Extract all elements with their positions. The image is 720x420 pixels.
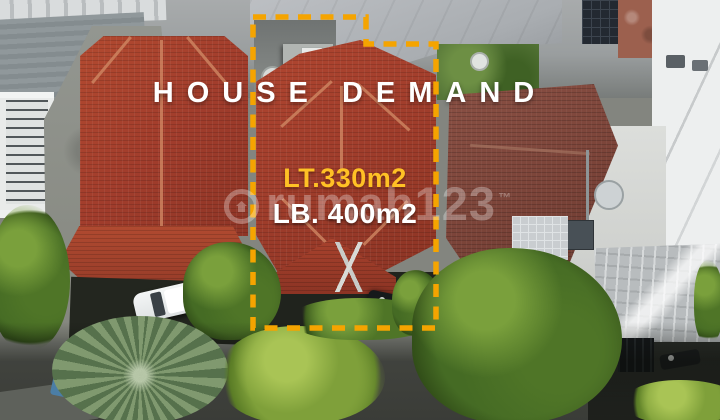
trademark-symbol: ™ [498,190,511,205]
land-area-label: LT.330m2 [253,163,437,194]
listing-title: HOUSE DEMAND [0,77,700,110]
building-area-label: LB. 400m2 [253,198,437,230]
aerial-property-photo: rumah123 ™ HOUSE DEMAND LT.330m2 LB. 400… [0,0,720,420]
area-labels: LT.330m2 LB. 400m2 [253,163,437,230]
